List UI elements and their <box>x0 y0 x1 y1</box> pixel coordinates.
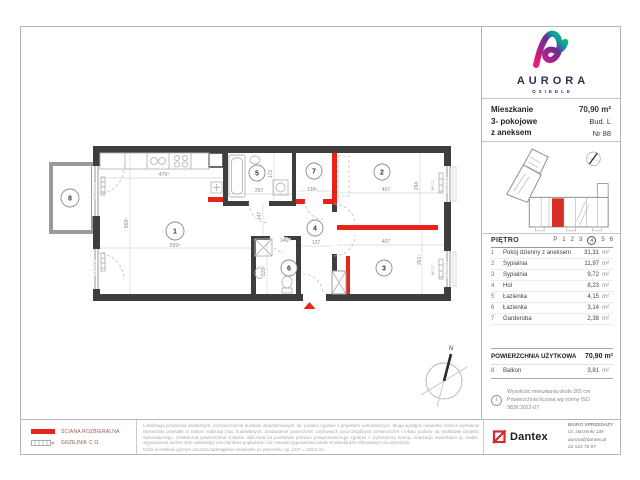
wardrobe-cross <box>332 271 346 294</box>
brand-logo-box: AURORA OSIEDLE <box>482 27 620 99</box>
info-icon: i <box>491 395 502 406</box>
svg-text:407: 407 <box>382 239 391 245</box>
floor-option-6[interactable]: 6 <box>610 237 613 243</box>
developer-logo: Dantex <box>492 429 548 444</box>
row-no: 2 <box>491 261 503 267</box>
row-name: Balkon <box>503 368 573 374</box>
svg-text:599⁵: 599⁵ <box>170 243 180 249</box>
svg-text:294: 294 <box>414 182 420 191</box>
row-unit: m² <box>599 305 613 311</box>
floor-option-3[interactable]: 3 <box>579 237 582 243</box>
usable-area-value: 70,90 m² <box>585 353 613 360</box>
legend: ŚCIANA ROZBIERALNA GRZEJNIK C.O. <box>31 426 135 448</box>
row-no: 7 <box>491 316 503 322</box>
brand-name: AURORA <box>482 75 620 87</box>
row-area: 4,15 <box>573 294 599 300</box>
table-row: 2Sypialnia11,97m² <box>491 259 613 270</box>
room-table: 1Pokój dzienny z aneksem31,31m² 2Sypialn… <box>491 248 613 325</box>
row-no: 5 <box>491 294 503 300</box>
usable-area-summary: POWIERZCHNIA UŻYTKOWA 70,90 m² <box>491 348 613 365</box>
svg-text:479⁵: 479⁵ <box>159 172 169 178</box>
compass: N <box>421 345 467 407</box>
footer-divider-1 <box>136 420 137 454</box>
dantex-wordmark: Dantex <box>510 431 548 443</box>
dimension-labels: 479⁵ 568⁵ 599⁵ 257 172 138⁵ 127 147 146⁵… <box>93 170 449 278</box>
row-area: 31,31 <box>573 250 599 256</box>
svg-text:172: 172 <box>268 170 274 179</box>
svg-text:6: 6 <box>287 266 291 273</box>
svg-text:4: 4 <box>313 226 317 233</box>
row-no: 6 <box>491 305 503 311</box>
floor-selector-label: PIĘTRO <box>491 237 519 244</box>
entrance-arrow <box>304 302 316 309</box>
row-unit: m² <box>599 316 613 322</box>
sales-office-email[interactable]: aurora@dantex.pl <box>568 437 613 444</box>
room-marker-2: 2 <box>374 164 390 180</box>
svg-text:257: 257 <box>255 188 264 194</box>
unit-building: Bud. L <box>579 116 611 128</box>
floor-option-5[interactable]: 5 <box>601 237 604 243</box>
site-plan <box>482 143 620 233</box>
sales-office-address: Ul. Jutrzenki 139 <box>568 429 613 436</box>
room-marker-8: 8 <box>61 189 79 207</box>
svg-text:407: 407 <box>382 187 391 193</box>
unit-type-line1: Mieszkanie <box>491 104 537 116</box>
unit-header: Mieszkanie 3- pokojowe z aneksem 70,90 m… <box>482 99 620 142</box>
floor-option-1[interactable]: 1 <box>562 237 565 243</box>
row-name: Łazienka <box>503 305 573 311</box>
svg-text:228⁵: 228⁵ <box>261 266 267 276</box>
unit-type: Mieszkanie 3- pokojowe z aneksem <box>491 104 537 136</box>
table-row: 5Łazienka4,15m² <box>491 292 613 303</box>
svg-text:100x215: 100x215 <box>445 263 449 278</box>
table-row: 3Sypialnia9,72m² <box>491 270 613 281</box>
note-text: Wysokość mieszkania około 265 cm Powierz… <box>507 389 616 412</box>
floor-option-p[interactable]: P <box>553 237 557 243</box>
site-plan-box <box>482 143 620 234</box>
table-row: 4Hol8,23m² <box>491 281 613 292</box>
legend-wall-label: ŚCIANA ROZBIERALNA <box>61 429 120 435</box>
highlighted-unit <box>552 198 564 227</box>
svg-text:1: 1 <box>173 229 177 236</box>
radiator-symbol <box>31 439 55 447</box>
row-no: 1 <box>491 250 503 256</box>
row-unit: m² <box>599 368 613 374</box>
row-unit: m² <box>599 294 613 300</box>
usable-area-unit: m² <box>604 353 613 360</box>
usable-area-number: 70,90 <box>585 353 603 360</box>
floorplan-sheet-page: 1 5 7 4 6 2 3 8 479⁵ 568⁵ 599⁵ 257 172 1… <box>0 0 640 480</box>
room-marker-1: 1 <box>166 222 184 240</box>
svg-text:110x234: 110x234 <box>93 261 97 275</box>
unit-area: 70,90 m² <box>579 104 611 116</box>
sheet-frame: 1 5 7 4 6 2 3 8 479⁵ 568⁵ 599⁵ 257 172 1… <box>20 26 621 455</box>
compass-north-label: N <box>449 345 454 352</box>
brand-subtitle: OSIEDLE <box>482 89 620 94</box>
info-panel: AURORA OSIEDLE Mieszkanie 3- pokojowe z … <box>481 27 620 419</box>
note-line-height: Wysokość mieszkania około 265 cm <box>507 389 616 397</box>
room-marker-5: 5 <box>249 165 265 181</box>
svg-text:7: 7 <box>312 169 316 176</box>
legend-item-wall: ŚCIANA ROZBIERALNA <box>31 426 135 437</box>
floor-option-4-selected[interactable]: 4 <box>587 236 596 245</box>
disclaimer-p2: Ostateczna powierzchnia zostanie obliczo… <box>143 435 479 446</box>
row-no: 4 <box>491 283 503 289</box>
room-marker-4: 4 <box>307 220 323 236</box>
unit-number: Nr 88 <box>579 128 611 140</box>
svg-text:8: 8 <box>68 196 72 203</box>
row-unit: m² <box>599 261 613 267</box>
svg-text:200x234: 200x234 <box>93 184 97 199</box>
row-name: Garderoba <box>503 316 573 322</box>
footer-divider-2 <box>483 420 484 454</box>
floor-selector: PIĘTRO P 1 2 3 4 5 6 <box>491 233 613 248</box>
removable-wall-symbol <box>31 429 55 434</box>
row-area: 11,97 <box>573 261 599 267</box>
row-area: 9,72 <box>573 272 599 278</box>
svg-text:261¹: 261¹ <box>417 255 423 265</box>
row-area: 8,23 <box>573 283 599 289</box>
vent-shaft <box>209 153 223 167</box>
dantex-logo-icon <box>492 429 507 444</box>
row-name: Hol <box>503 283 573 289</box>
svg-text:146⁵: 146⁵ <box>280 238 290 244</box>
row-name: Łazienka <box>503 294 573 300</box>
disclaimer: Lokalizacja przyborów sanitarnych, rozmi… <box>143 423 479 453</box>
room-marker-6: 6 <box>281 260 297 276</box>
table-row: 7Garderoba2,38m² <box>491 314 613 325</box>
svg-text:5: 5 <box>255 171 259 178</box>
row-name: Pokój dzienny z aneksem <box>503 250 573 256</box>
usable-area-label: POWIERZCHNIA UŻYTKOWA <box>491 353 576 360</box>
unit-type-line2: 3- pokojowe <box>491 116 537 128</box>
room-marker-3: 3 <box>376 260 392 276</box>
row-unit: m² <box>599 250 613 256</box>
disclaimer-p3: Cyfra w indeksie górnym oznacza zaokrągl… <box>143 447 479 453</box>
row-no: 3 <box>491 272 503 278</box>
info-note: i Wysokość mieszkania około 265 cm Powie… <box>491 389 616 412</box>
svg-text:NP-17: NP-17 <box>431 265 435 276</box>
room-marker-7: 7 <box>306 163 322 179</box>
row-unit: m² <box>599 272 613 278</box>
table-row: 1Pokój dzienny z aneksem31,31m² <box>491 248 613 259</box>
unit-type-line3: z aneksem <box>491 127 537 139</box>
svg-text:147: 147 <box>257 212 263 221</box>
floor-option-2[interactable]: 2 <box>571 237 574 243</box>
sales-office-phone: 22 123 75 97 <box>568 444 613 451</box>
svg-text:NP-17: NP-17 <box>431 180 435 191</box>
svg-text:100x215: 100x215 <box>445 178 449 193</box>
unit-meta: 70,90 m² Bud. L Nr 88 <box>579 104 611 136</box>
floor-plan-area: 1 5 7 4 6 2 3 8 479⁵ 568⁵ 599⁵ 257 172 1… <box>21 27 481 419</box>
bedroom2-wardrobe-dashed <box>338 156 349 196</box>
footer: ŚCIANA ROZBIERALNA GRZEJNIK C.O. Lokaliz… <box>21 419 620 454</box>
legend-radiator-label: GRZEJNIK C.O. <box>61 440 100 446</box>
note-line-norm: Powierzchnia liczona wg normy ISO 9836:2… <box>507 397 616 413</box>
row-unit: m² <box>599 283 613 289</box>
floor-options: P 1 2 3 4 5 6 <box>553 236 613 245</box>
legend-item-radiator: GRZEJNIK C.O. <box>31 437 135 448</box>
aurora-logo-icon <box>491 27 611 69</box>
sales-office-title: BIURO SPRZEDAŻY <box>568 422 613 429</box>
balcony-row: 8 Balkon 3,81 m² <box>491 364 613 379</box>
svg-text:138⁵: 138⁵ <box>307 187 317 193</box>
row-no: 8 <box>491 368 503 374</box>
svg-text:127: 127 <box>312 240 321 246</box>
svg-text:568⁵: 568⁵ <box>124 218 130 228</box>
svg-text:2: 2 <box>380 170 384 177</box>
row-area: 3,81 <box>573 368 599 374</box>
row-area: 2,38 <box>573 316 599 322</box>
row-name: Sypialnia <box>503 272 573 278</box>
row-area: 3,14 <box>573 305 599 311</box>
svg-text:3: 3 <box>382 266 386 273</box>
floor-plan: 1 5 7 4 6 2 3 8 479⁵ 568⁵ 599⁵ 257 172 1… <box>21 27 481 419</box>
row-name: Sypialnia <box>503 261 573 267</box>
table-row: 6Łazienka3,14m² <box>491 303 613 314</box>
sales-office-contact: BIURO SPRZEDAŻY Ul. Jutrzenki 139 aurora… <box>568 422 613 452</box>
